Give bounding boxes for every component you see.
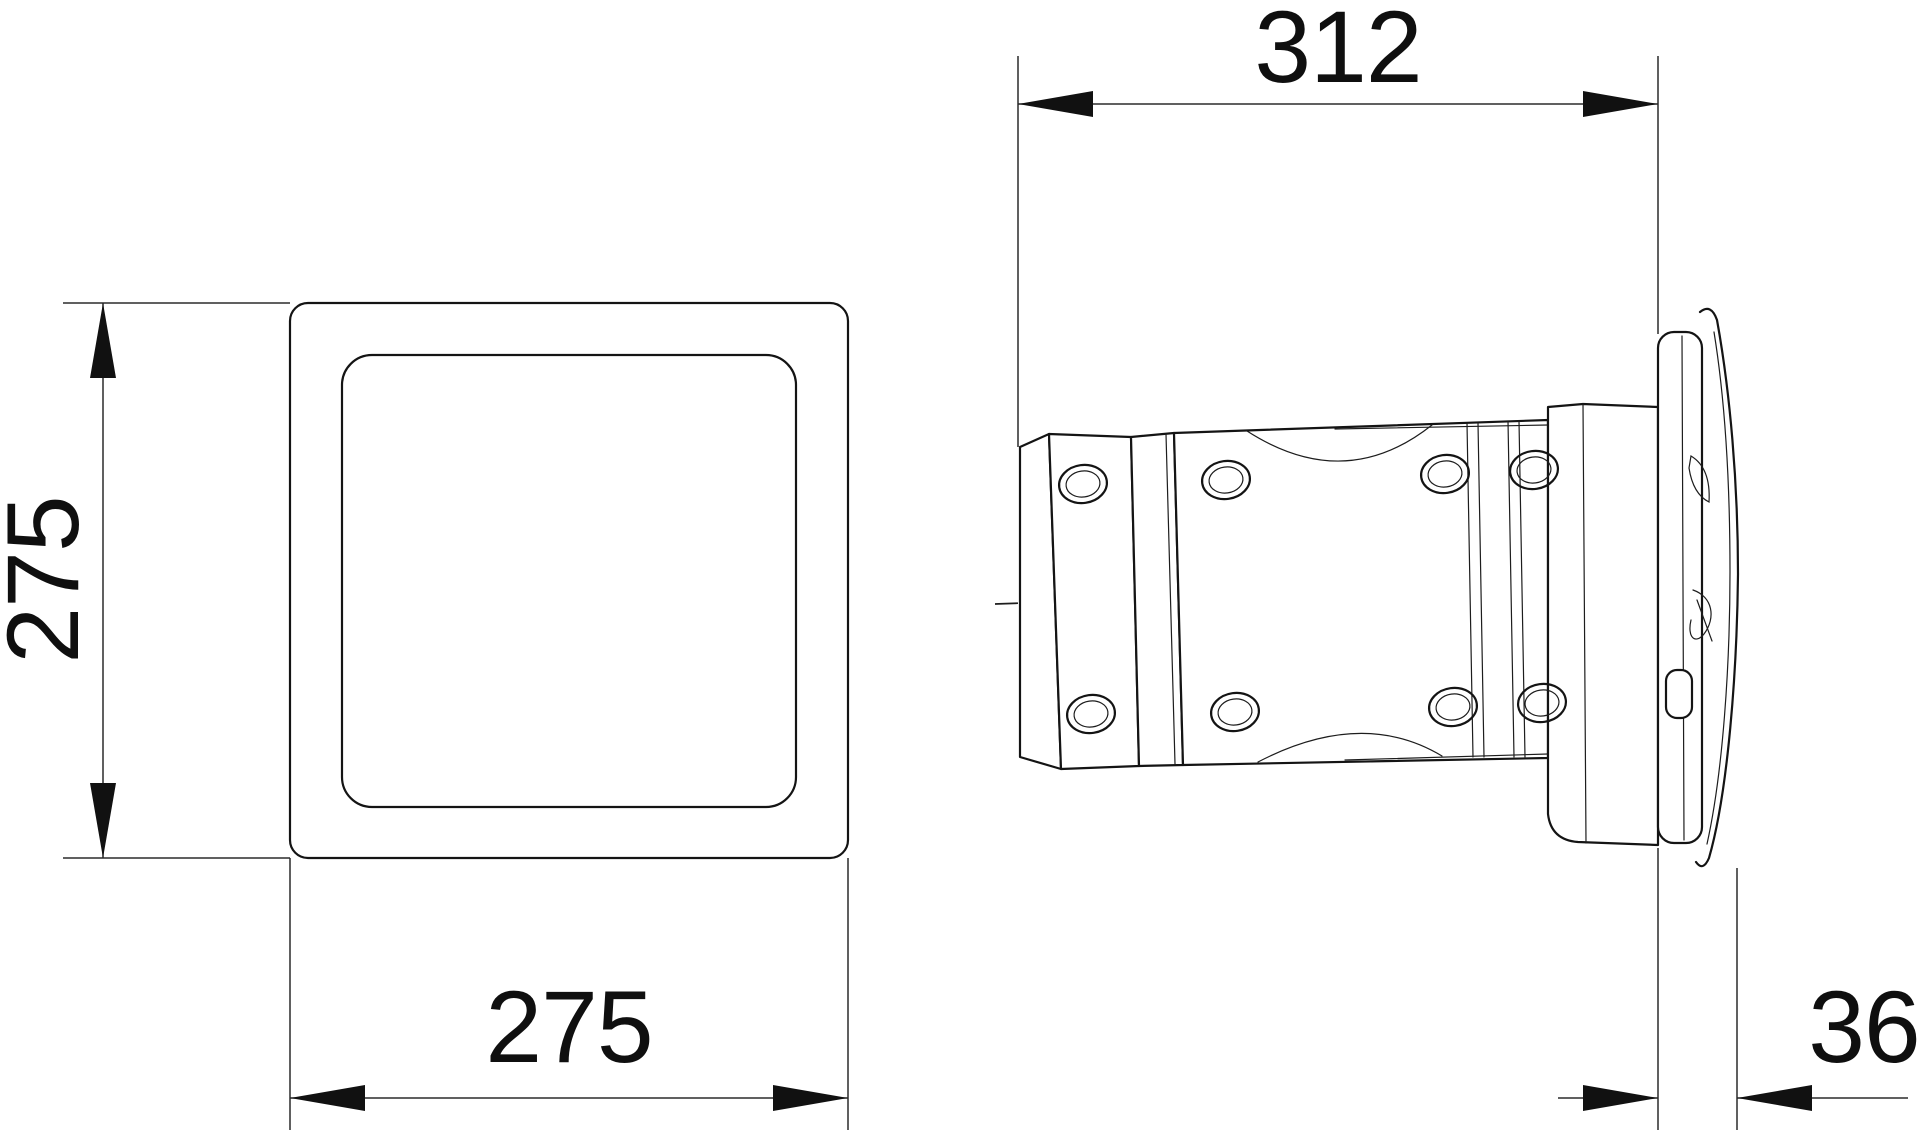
engineering-drawing-canvas: 275 275 312 bbox=[0, 0, 1920, 1136]
front-view bbox=[290, 303, 848, 858]
arrowhead-down-icon bbox=[90, 783, 116, 858]
side-mounting-flange bbox=[1548, 404, 1658, 845]
dimension-front-height: 275 bbox=[0, 303, 290, 858]
latch-detail bbox=[1666, 670, 1692, 718]
front-outer-bezel bbox=[290, 303, 848, 858]
arrowhead-right-icon bbox=[1583, 91, 1658, 117]
side-view bbox=[995, 309, 1738, 866]
technical-drawing-page: 275 275 312 bbox=[0, 0, 1920, 1136]
side-wall-plate bbox=[1658, 332, 1702, 843]
dimension-label-front-width: 275 bbox=[485, 970, 652, 1084]
arrowhead-up-icon bbox=[90, 303, 116, 378]
arrowhead-left-icon bbox=[290, 1085, 365, 1111]
side-main-drum bbox=[1174, 420, 1548, 765]
dimension-side-protrusion: 36 bbox=[1558, 848, 1920, 1130]
arrowhead-left-icon bbox=[1018, 91, 1093, 117]
arrowhead-right-icon bbox=[773, 1085, 848, 1111]
dimension-label-side-length: 312 bbox=[1254, 0, 1421, 104]
dimension-label-side-protrusion: 36 bbox=[1808, 970, 1919, 1084]
arrowhead-left-icon bbox=[1737, 1085, 1812, 1111]
dimension-front-width: 275 bbox=[290, 858, 848, 1130]
dimension-label-front-height: 275 bbox=[0, 496, 100, 663]
side-bolt-panel-1 bbox=[1049, 434, 1139, 769]
arrowhead-right-icon bbox=[1583, 1085, 1658, 1111]
dimension-side-length: 312 bbox=[1018, 0, 1658, 447]
front-inner-panel bbox=[342, 355, 796, 807]
